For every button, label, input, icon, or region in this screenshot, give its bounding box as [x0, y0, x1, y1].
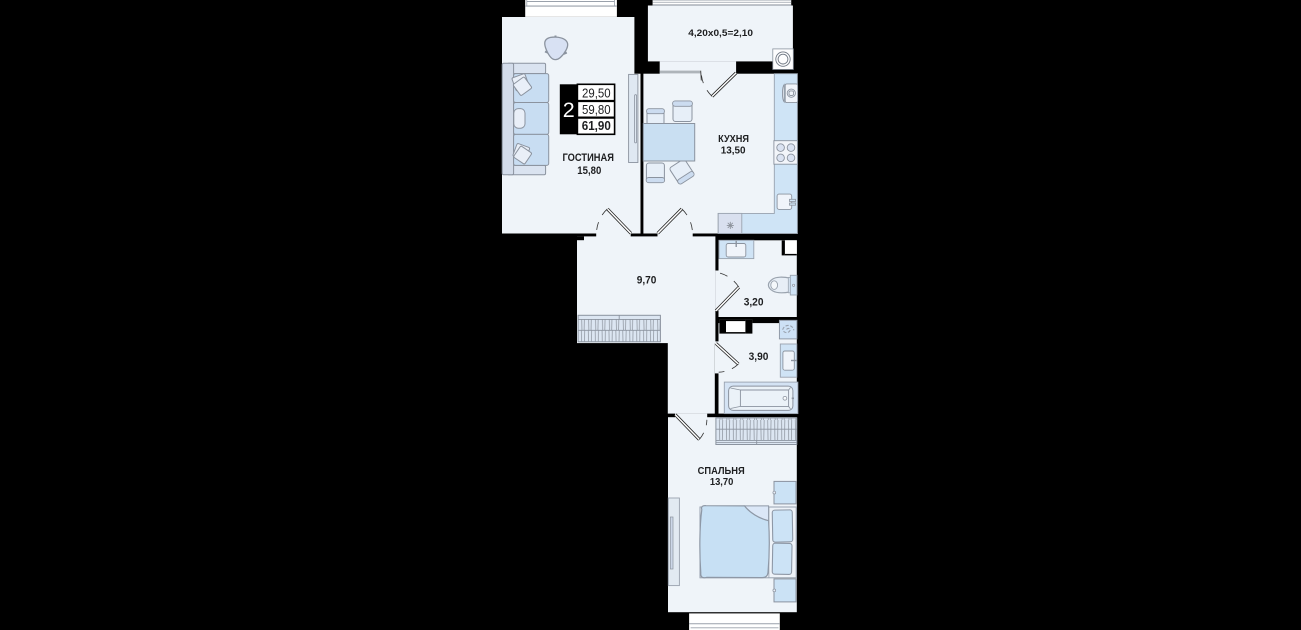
svg-text:3,20: 3,20 [744, 297, 764, 309]
svg-text:СПАЛЬНЯ: СПАЛЬНЯ [698, 465, 745, 477]
svg-text:61,90: 61,90 [582, 118, 611, 133]
svg-text:3,90: 3,90 [749, 351, 769, 363]
svg-text:15,80: 15,80 [577, 165, 601, 177]
svg-text:КУХНЯ: КУХНЯ [718, 133, 749, 145]
svg-text:13,50: 13,50 [721, 145, 746, 157]
svg-text:13,70: 13,70 [710, 476, 734, 488]
svg-text:4,20х0,5=2,10: 4,20х0,5=2,10 [688, 28, 753, 39]
svg-text:ГОСТИНАЯ: ГОСТИНАЯ [563, 152, 614, 164]
svg-text:59,80: 59,80 [582, 103, 611, 117]
svg-text:2: 2 [563, 98, 575, 122]
svg-text:9,70: 9,70 [637, 275, 657, 287]
svg-text:29,50: 29,50 [582, 87, 611, 101]
